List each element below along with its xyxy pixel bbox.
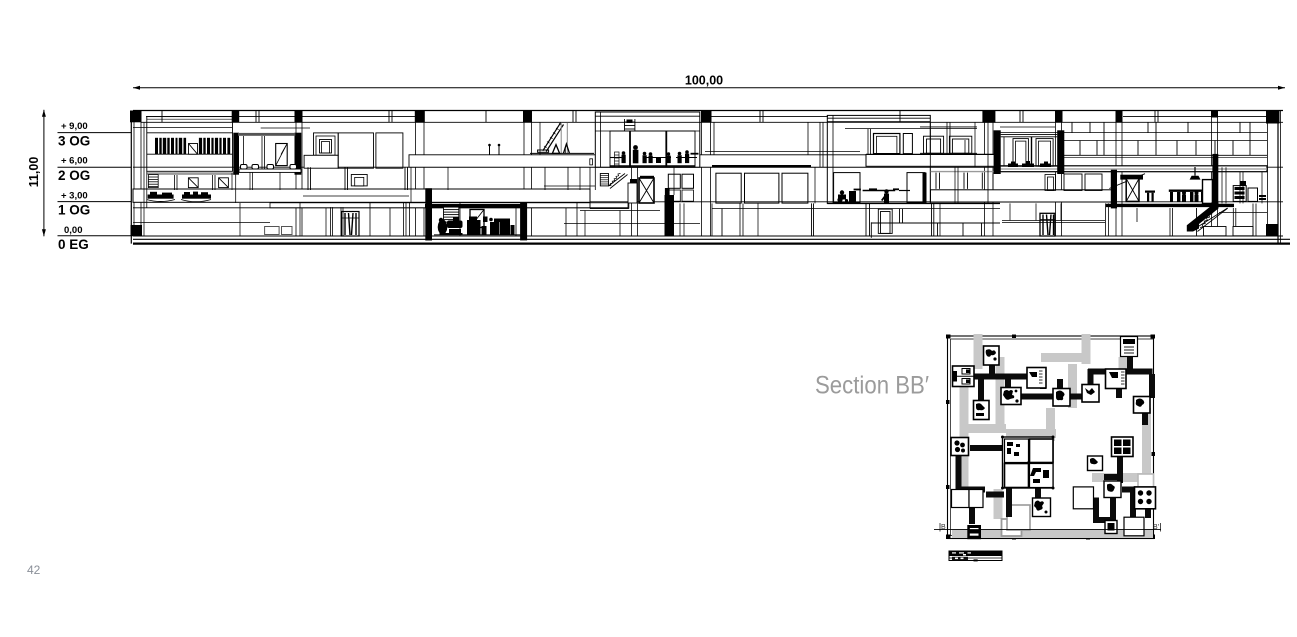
svg-text:0 EG: 0 EG xyxy=(58,237,89,252)
svg-text:11,00: 11,00 xyxy=(27,157,41,188)
svg-text:0,00: 0,00 xyxy=(64,225,83,236)
svg-text:100,00: 100,00 xyxy=(685,74,723,88)
svg-text:1 OG: 1 OG xyxy=(58,202,90,217)
svg-text:Section BB′: Section BB′ xyxy=(815,372,929,400)
svg-text:B′: B′ xyxy=(1153,524,1160,531)
svg-text:42: 42 xyxy=(27,563,41,577)
svg-text:+ 9,00: + 9,00 xyxy=(61,121,88,132)
svg-text:+ 6,00: + 6,00 xyxy=(61,156,88,167)
svg-text:B: B xyxy=(941,524,946,531)
svg-text:2 OG: 2 OG xyxy=(58,168,90,183)
svg-text:3 OG: 3 OG xyxy=(58,134,90,149)
svg-text:+ 3,00: + 3,00 xyxy=(61,191,88,202)
